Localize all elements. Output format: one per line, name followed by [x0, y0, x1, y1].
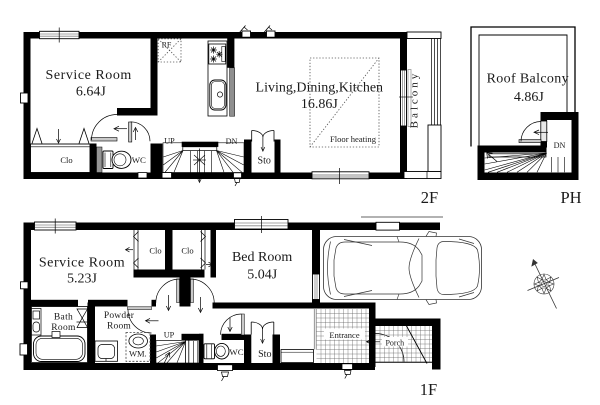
- svg-text:Floor heating: Floor heating: [330, 134, 377, 144]
- svg-text:RF: RF: [162, 41, 172, 50]
- svg-text:16.86J: 16.86J: [301, 97, 339, 112]
- svg-text:Clo: Clo: [181, 246, 193, 256]
- svg-text:WM.: WM.: [129, 349, 147, 359]
- svg-text:Bath: Bath: [54, 313, 73, 323]
- svg-text:WC: WC: [132, 155, 146, 165]
- svg-text:DN: DN: [554, 141, 566, 150]
- svg-text:Room: Room: [107, 322, 131, 332]
- svg-text:Living,Dining,Kitchen: Living,Dining,Kitchen: [256, 81, 384, 96]
- svg-text:Sto: Sto: [258, 156, 271, 167]
- svg-text:Service Room: Service Room: [46, 68, 132, 83]
- svg-text:UP: UP: [164, 137, 175, 146]
- svg-text:Room: Room: [51, 323, 76, 333]
- svg-text:WC: WC: [229, 347, 243, 357]
- svg-text:Bed Room: Bed Room: [232, 250, 292, 265]
- svg-text:Roof Balcony: Roof Balcony: [487, 71, 569, 86]
- svg-text:PH: PH: [560, 188, 581, 207]
- svg-text:Sto: Sto: [258, 349, 271, 360]
- svg-text:Clo: Clo: [60, 155, 72, 165]
- svg-text:Entrance: Entrance: [329, 330, 359, 340]
- svg-text:6.64J: 6.64J: [76, 85, 107, 100]
- svg-text:2F: 2F: [421, 188, 438, 207]
- svg-text:Porch: Porch: [385, 338, 404, 347]
- svg-text:4.86J: 4.86J: [514, 90, 545, 105]
- svg-text:Powder: Powder: [104, 311, 135, 321]
- svg-text:Service Room: Service Room: [39, 255, 125, 270]
- svg-text:Balcony: Balcony: [408, 71, 420, 129]
- svg-text:5.04J: 5.04J: [247, 268, 278, 283]
- svg-text:Clo: Clo: [149, 246, 161, 256]
- svg-text:5.23J: 5.23J: [67, 271, 98, 286]
- svg-text:DN: DN: [226, 137, 238, 146]
- svg-text:1F: 1F: [420, 380, 437, 399]
- svg-text:UP: UP: [164, 331, 175, 340]
